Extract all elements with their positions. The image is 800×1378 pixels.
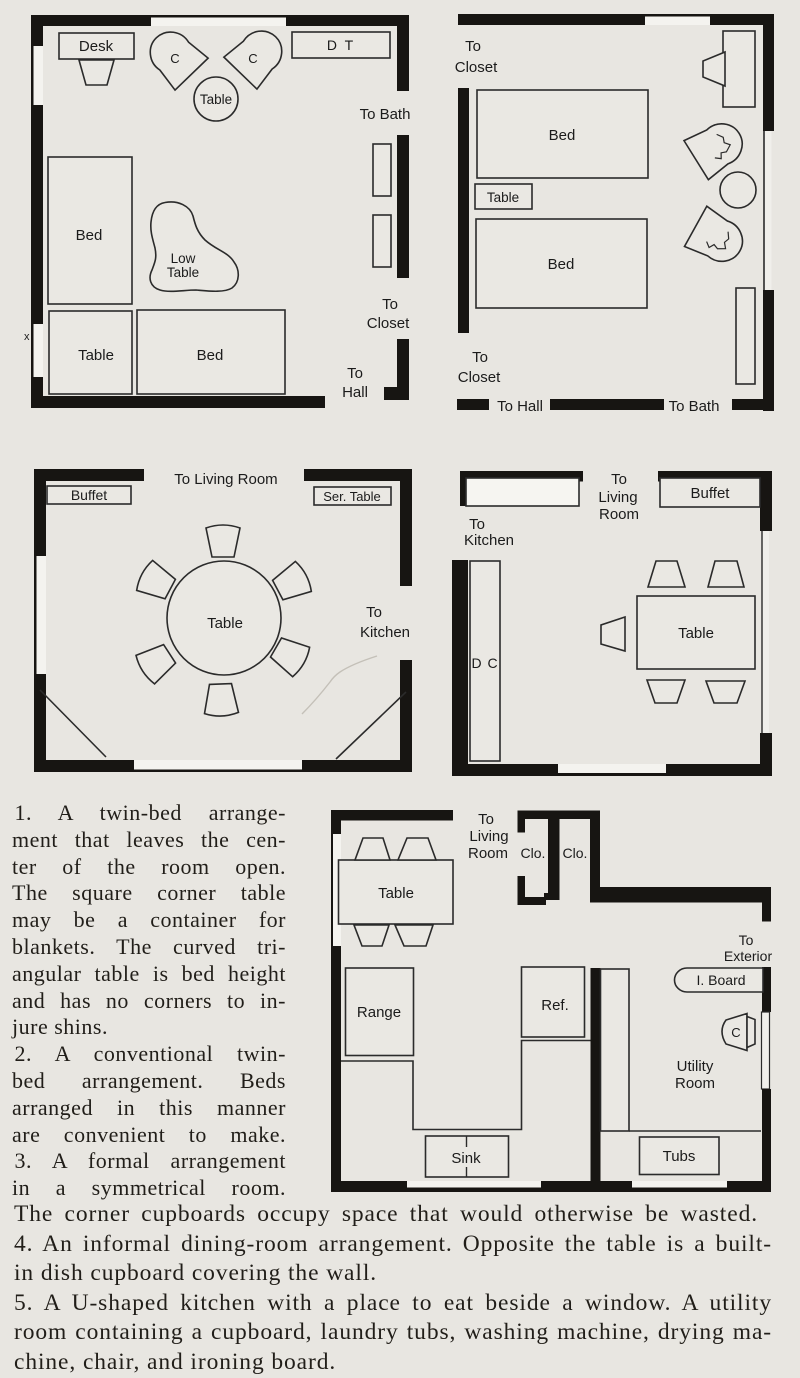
svg-text:Buffet: Buffet bbox=[691, 485, 731, 502]
svg-text:Desk: Desk bbox=[79, 38, 114, 55]
svg-text:Closet: Closet bbox=[367, 315, 410, 332]
svg-text:Table: Table bbox=[78, 347, 114, 364]
svg-text:Table: Table bbox=[678, 625, 714, 642]
svg-text:To: To bbox=[382, 296, 398, 313]
svg-text:C: C bbox=[170, 51, 179, 66]
svg-text:Low: Low bbox=[171, 251, 196, 266]
svg-text:To Living Room: To Living Room bbox=[174, 471, 277, 488]
svg-text:To Bath: To Bath bbox=[360, 106, 411, 123]
svg-text:To: To bbox=[611, 471, 627, 488]
svg-text:Tubs: Tubs bbox=[663, 1148, 696, 1165]
svg-text:To: To bbox=[472, 349, 488, 366]
svg-text:Table: Table bbox=[378, 885, 414, 902]
svg-text:Table: Table bbox=[207, 615, 243, 632]
svg-text:To: To bbox=[347, 365, 363, 382]
svg-text:To: To bbox=[366, 604, 382, 621]
svg-text:Clo.: Clo. bbox=[563, 845, 588, 861]
svg-text:D T: D T bbox=[327, 37, 355, 53]
svg-text:Table: Table bbox=[200, 92, 232, 107]
svg-text:Kitchen: Kitchen bbox=[360, 624, 410, 641]
svg-text:Ser. Table: Ser. Table bbox=[323, 489, 381, 504]
svg-text:Kitchen: Kitchen bbox=[464, 532, 514, 549]
svg-text:Table: Table bbox=[487, 190, 519, 205]
svg-text:Closet: Closet bbox=[455, 59, 498, 76]
svg-text:Bed: Bed bbox=[76, 227, 103, 244]
svg-text:D C: D C bbox=[471, 655, 498, 671]
svg-text:C: C bbox=[731, 1025, 740, 1040]
svg-text:To: To bbox=[469, 516, 485, 533]
svg-text:Living: Living bbox=[469, 828, 508, 845]
svg-text:Exterior: Exterior bbox=[724, 948, 773, 964]
svg-text:Range: Range bbox=[357, 1004, 401, 1021]
svg-text:To: To bbox=[739, 932, 754, 948]
svg-text:Ref.: Ref. bbox=[541, 997, 569, 1014]
svg-text:Closet: Closet bbox=[458, 369, 501, 386]
svg-text:To Hall: To Hall bbox=[497, 398, 543, 415]
svg-text:Room: Room bbox=[599, 506, 639, 523]
svg-text:I. Board: I. Board bbox=[696, 972, 745, 988]
svg-text:x: x bbox=[24, 331, 30, 343]
svg-text:Sink: Sink bbox=[451, 1150, 481, 1167]
svg-text:Bed: Bed bbox=[548, 256, 575, 273]
svg-text:Bed: Bed bbox=[549, 127, 576, 144]
svg-text:To Bath: To Bath bbox=[669, 398, 720, 415]
svg-text:Living: Living bbox=[598, 489, 637, 506]
svg-text:Hall: Hall bbox=[342, 384, 368, 401]
svg-text:To: To bbox=[478, 811, 494, 828]
svg-text:C: C bbox=[248, 51, 257, 66]
svg-text:Room: Room bbox=[468, 845, 508, 862]
svg-text:Bed: Bed bbox=[197, 347, 224, 364]
svg-text:Table: Table bbox=[167, 265, 199, 280]
svg-text:To: To bbox=[465, 38, 481, 55]
svg-text:Room: Room bbox=[675, 1075, 715, 1092]
svg-text:Buffet: Buffet bbox=[71, 487, 107, 503]
svg-text:Utility: Utility bbox=[677, 1058, 714, 1075]
svg-text:Clo.: Clo. bbox=[521, 845, 546, 861]
